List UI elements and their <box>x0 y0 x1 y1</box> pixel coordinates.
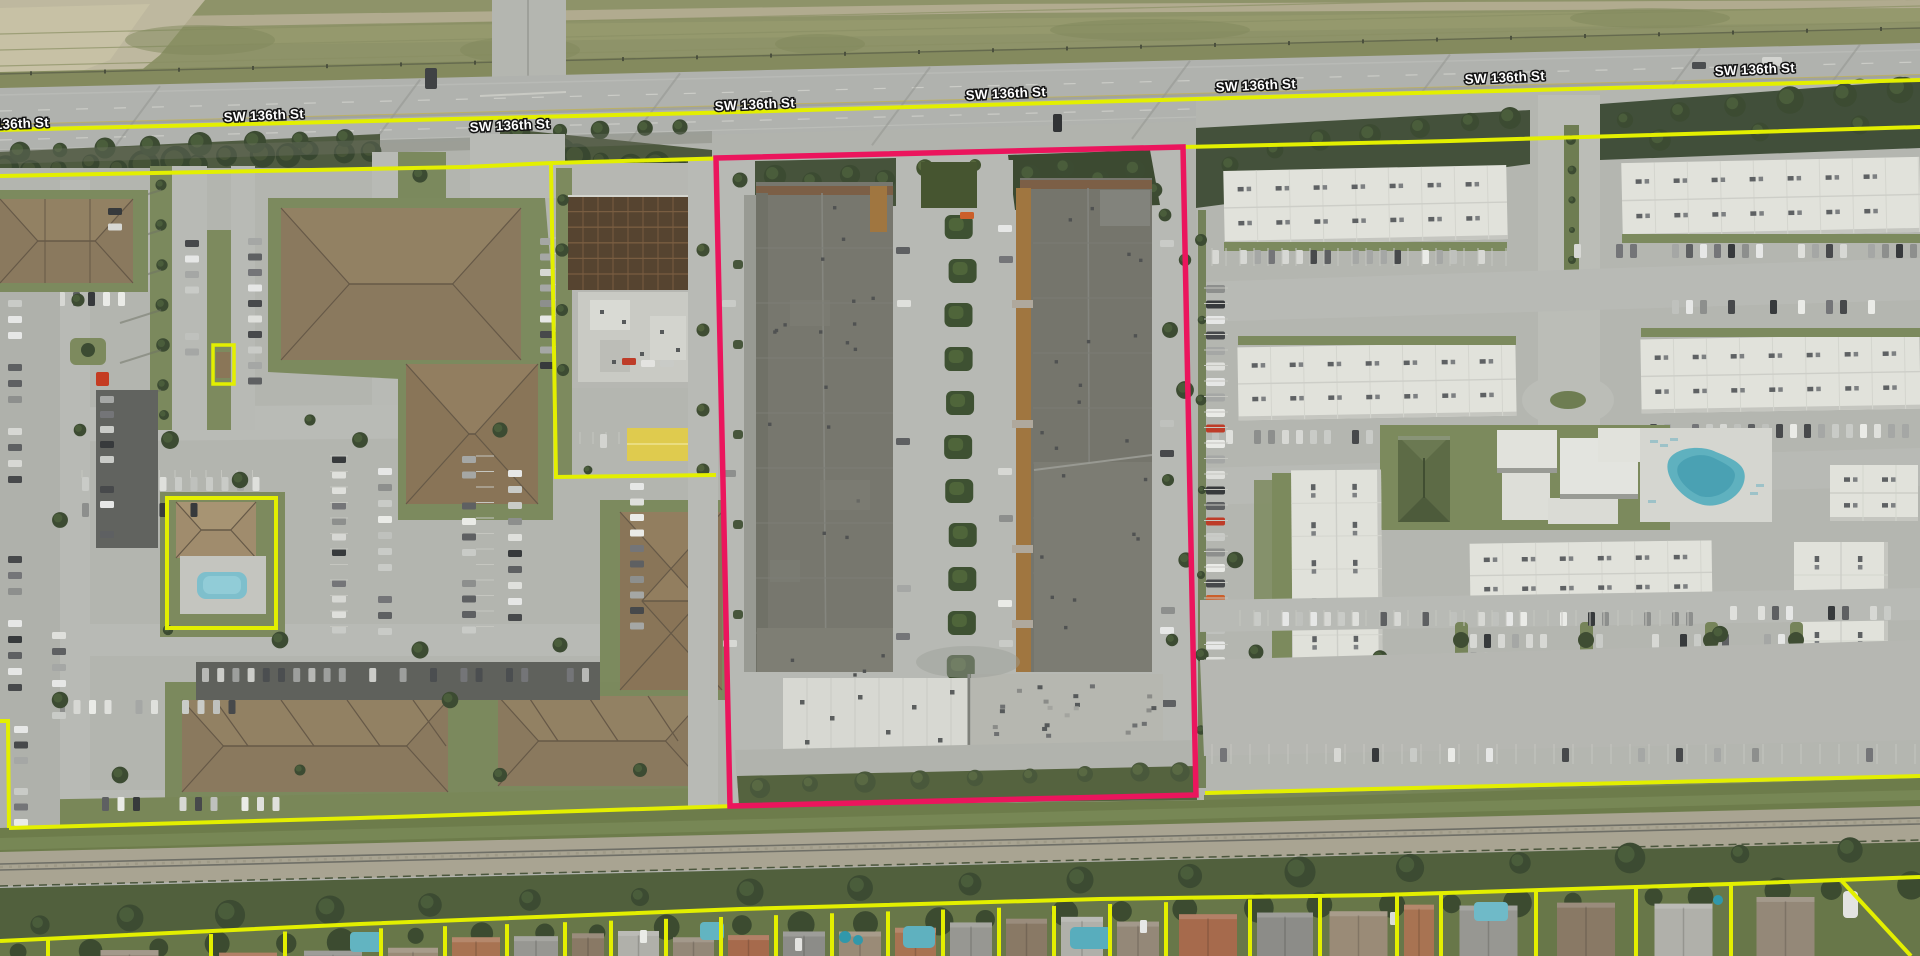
svg-text:136th St: 136th St <box>0 115 49 132</box>
